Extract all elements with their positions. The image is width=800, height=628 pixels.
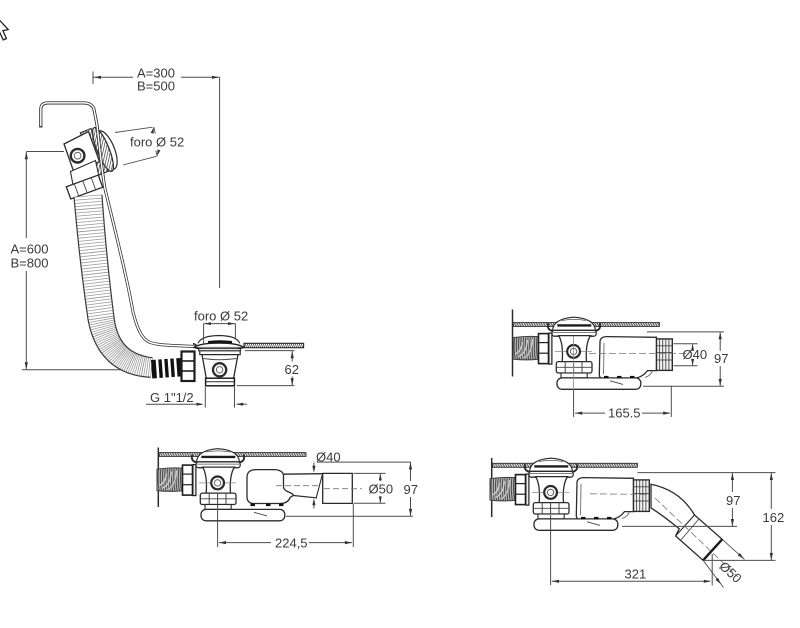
- svg-text:G 1"1/2: G 1"1/2: [150, 390, 194, 405]
- svg-text:B=500: B=500: [137, 79, 175, 94]
- svg-text:97: 97: [726, 493, 740, 508]
- svg-text:97: 97: [714, 351, 728, 366]
- svg-text:Ø40: Ø40: [683, 347, 708, 362]
- svg-text:321: 321: [625, 567, 647, 582]
- svg-text:B=800: B=800: [11, 256, 49, 271]
- svg-text:A=600: A=600: [11, 242, 49, 257]
- svg-text:165.5: 165.5: [608, 405, 641, 420]
- svg-text:224,5: 224,5: [275, 536, 308, 551]
- svg-text:foro Ø 52: foro Ø 52: [194, 309, 248, 324]
- svg-text:foro Ø 52: foro Ø 52: [130, 135, 184, 150]
- svg-text:Ø50: Ø50: [369, 482, 394, 497]
- svg-text:62: 62: [285, 362, 299, 377]
- svg-text:97: 97: [404, 482, 418, 497]
- svg-text:162: 162: [763, 510, 785, 525]
